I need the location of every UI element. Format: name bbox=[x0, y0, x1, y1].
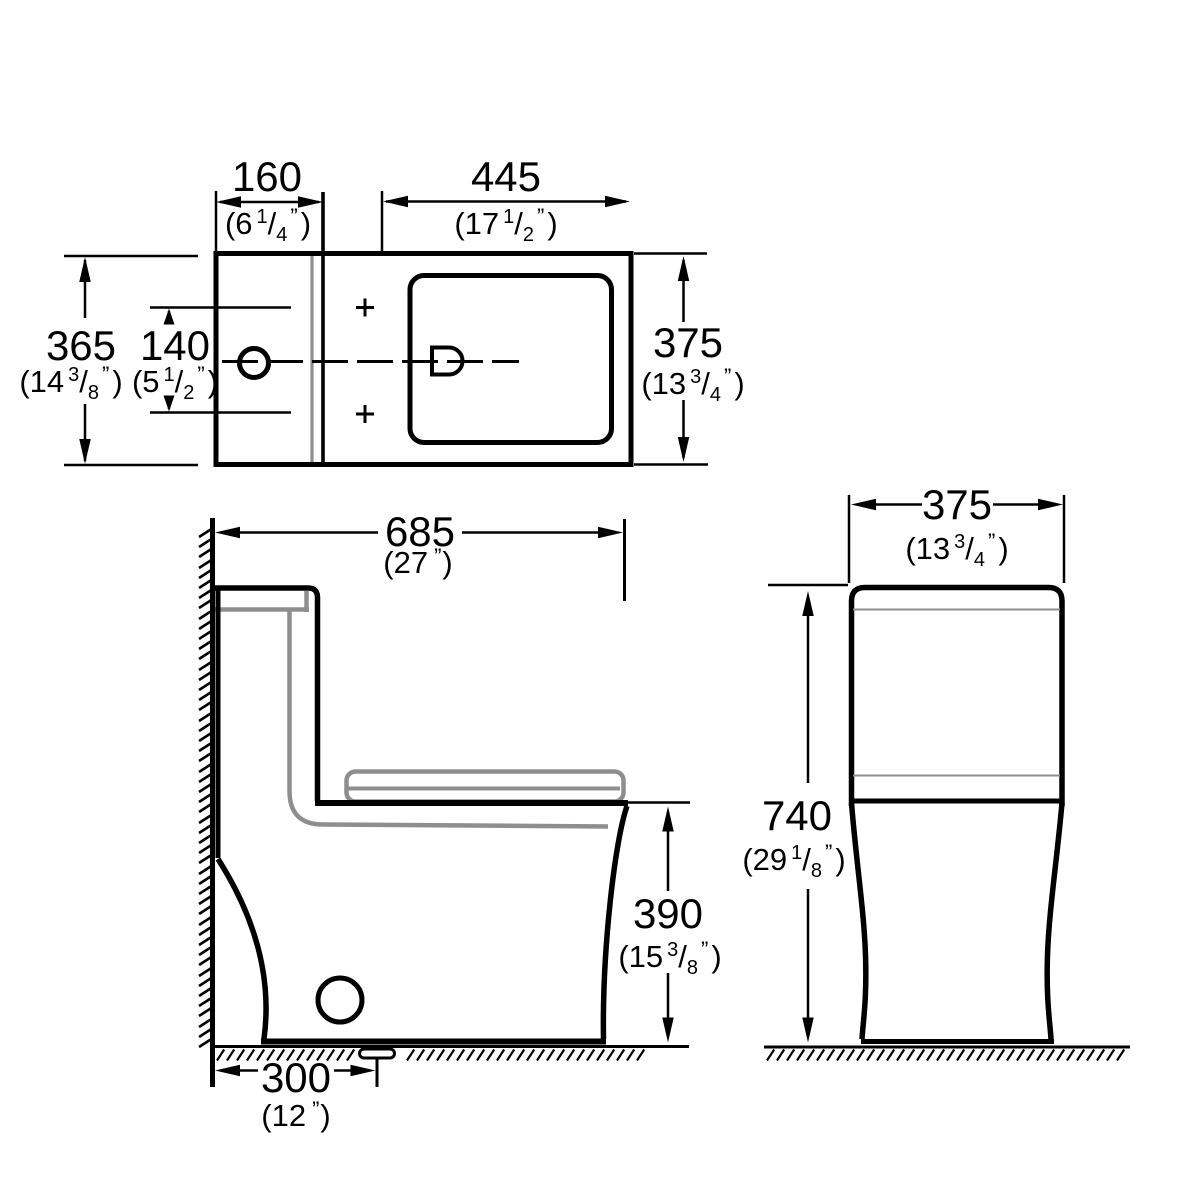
svg-text:300: 300 bbox=[261, 1054, 331, 1101]
svg-text:375: 375 bbox=[922, 481, 992, 528]
svg-text:375: 375 bbox=[653, 319, 723, 366]
svg-text:390: 390 bbox=[633, 890, 703, 937]
svg-text:(12”): (12”) bbox=[261, 1097, 330, 1133]
svg-text:(27”): (27”) bbox=[383, 544, 452, 580]
svg-text:160: 160 bbox=[232, 153, 302, 200]
svg-text:740: 740 bbox=[762, 792, 832, 839]
svg-text:445: 445 bbox=[471, 153, 541, 200]
